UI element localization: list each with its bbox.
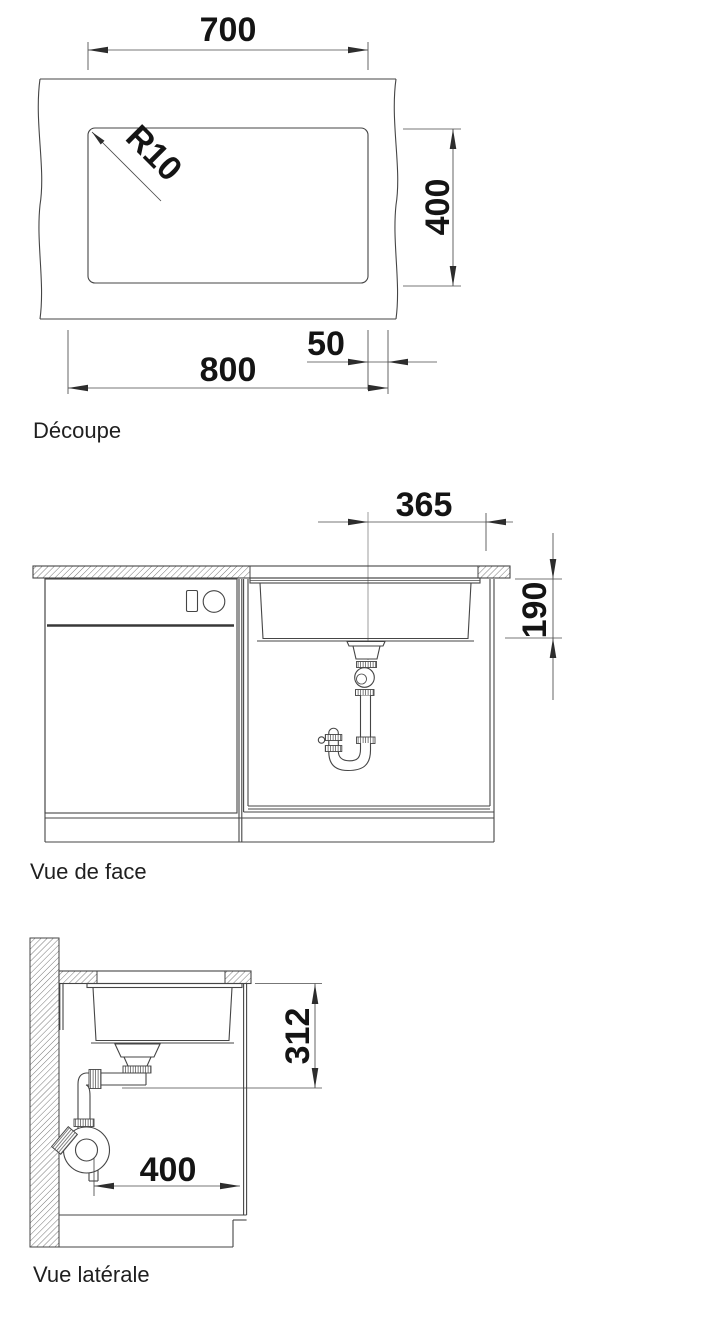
dim-700-label: 700 [200, 11, 257, 49]
dishwasher-cabinet [45, 579, 237, 813]
side-view: 312 400 Vue latérale [30, 938, 322, 1287]
dim-365-label: 365 [396, 486, 453, 524]
front-view: 365 190 Vue de face [30, 486, 562, 884]
sink-cabinet-front [45, 579, 494, 842]
sink-installation-drawing: R10 700 400 50 [0, 0, 701, 1325]
dim-800-label: 800 [200, 351, 257, 389]
back-rail [60, 984, 63, 1031]
dimension-side-offset: 50 [307, 325, 437, 394]
cutout-view-label: Découpe [33, 418, 121, 443]
dishwasher-panel-knob-icon [203, 591, 225, 613]
dim-312-label: 312 [279, 1008, 317, 1065]
siphon-front [318, 642, 385, 771]
front-countertop [33, 566, 510, 578]
dimension-drain-offset: 365 [318, 486, 513, 551]
side-view-label: Vue latérale [33, 1262, 150, 1287]
sink-bowl-front [257, 583, 474, 641]
radius-arrow [90, 130, 104, 144]
dimension-drain-distance: 400 [94, 1151, 240, 1196]
drain-flange [347, 642, 385, 647]
front-view-label: Vue de face [30, 859, 147, 884]
technical-drawing-page: R10 700 400 50 [0, 0, 701, 1325]
dimension-cutout-width: 700 [88, 11, 368, 70]
dim-50-label: 50 [307, 325, 345, 363]
side-countertop [59, 971, 251, 984]
dimension-bowl-depth: 190 [505, 533, 562, 700]
strainer-cup [353, 646, 380, 659]
dim-400-label: 400 [419, 179, 457, 236]
dimension-drain-height: 312 [122, 984, 322, 1089]
wall-section [30, 938, 59, 1247]
dishwasher-panel-rect-icon [187, 591, 198, 612]
dim-400-side-label: 400 [140, 1151, 197, 1189]
cutout-view: R10 700 400 50 [33, 11, 461, 443]
side-sink-rim [87, 984, 242, 988]
dim-190-label: 190 [516, 582, 554, 639]
ball-joint-elbow [355, 668, 375, 688]
sink-bowl-side [91, 988, 234, 1044]
side-strainer [115, 1044, 160, 1057]
sink-rim [250, 578, 480, 583]
trap-cleanout-plug [318, 737, 324, 743]
dimension-cutout-depth: 400 [403, 129, 461, 286]
radius-annotation: R10 [90, 118, 189, 201]
